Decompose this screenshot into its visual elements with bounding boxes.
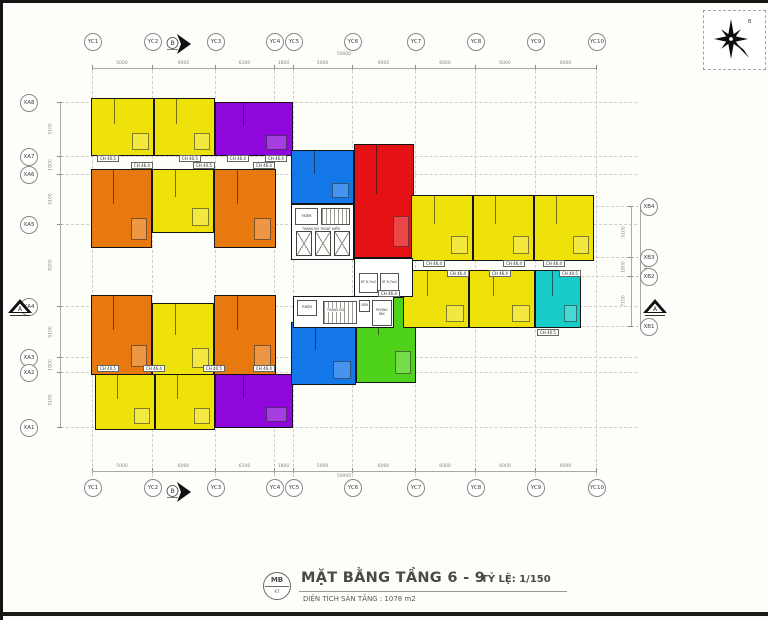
unit-tag-chip: CH 46.4 — [489, 270, 511, 277]
dim-value-bottom: 5000 — [317, 464, 328, 469]
unit-tag-chip: CH 46.4 — [543, 260, 565, 267]
dim-value-top: 6000 — [499, 61, 510, 66]
axis-bubble-XA5: XA5 — [20, 216, 38, 234]
dim-total-bottom: 50000 — [337, 474, 351, 479]
dim-value-left: 5100 — [49, 123, 54, 134]
unit-tag-chip: CH 46.4 — [378, 290, 400, 297]
axis-bubble-YC4-top: YC4 — [266, 33, 284, 51]
unit-apt-botleft-2 — [155, 374, 215, 430]
title-underline — [299, 591, 567, 592]
unit-tag-chip: CH 46.4 — [253, 365, 275, 372]
unit-apt-mid-up-yellow — [152, 169, 214, 233]
unit-tag-chip: CH 46.4 — [143, 365, 165, 372]
upper-core-room-pdem: P.ĐỆM — [295, 208, 318, 225]
axis-bubble-YC6-top: YC6 — [344, 33, 362, 51]
unit-apt-topleft-2 — [154, 98, 215, 156]
unit-apt-mid-up-orange-l — [91, 169, 152, 248]
floor-area-note: DIỆN TÍCH SÀN TẦNG : 1078 m2 — [303, 595, 416, 603]
dim-line-top — [92, 68, 596, 69]
corridor-room-kt1: KT 6.7m2 — [359, 273, 378, 293]
axis-bubble-YC3-top: YC3 — [207, 33, 225, 51]
dim-value-top: 6100 — [239, 61, 250, 66]
dim-value-top: 1800 — [278, 61, 289, 66]
axis-bubble-YC8-bottom: YC8 — [467, 479, 485, 497]
axis-bubble-YC7-top: YC7 — [407, 33, 425, 51]
axis-bubble-YC2-top: YC2 — [144, 33, 162, 51]
unit-tag-chip: CH 46.4 — [227, 155, 249, 162]
dim-value-right: 5100 — [622, 226, 627, 237]
unit-apt-right-up-1 — [411, 195, 473, 261]
dim-value-top: 5000 — [116, 61, 127, 66]
unit-apt-mid-up-orange-r — [214, 169, 276, 248]
dim-value-left: 5100 — [49, 326, 54, 337]
unit-apt-mid-low-orange-r — [214, 295, 276, 375]
upper-core: P.ĐỆM THANG BỘ THOÁT HIỂM — [291, 204, 354, 260]
axis-bubble-XA6: XA6 — [20, 166, 38, 184]
grid-line-YC6 — [352, 71, 353, 477]
compass-rose-icon: B — [704, 11, 763, 67]
dim-line-left — [60, 102, 61, 427]
compass-b-label: B — [748, 19, 752, 25]
unit-tag-chip: CH 46.4 — [265, 155, 287, 162]
north-arrow-bottom: B — [165, 480, 193, 504]
unit-apt-mid-low-orange-l — [91, 295, 152, 375]
unit-apt-right-up-2 — [473, 195, 534, 261]
dim-value-top: 6000 — [439, 61, 450, 66]
dim-value-left: 1800 — [49, 159, 54, 170]
dim-value-bottom: 6000 — [560, 464, 571, 469]
unit-apt-topleft-1 — [91, 98, 154, 156]
axis-bubble-YC2-bottom: YC2 — [144, 479, 162, 497]
axis-bubble-YC8-top: YC8 — [467, 33, 485, 51]
floorplan-sheet: YC1YC1YC2YC2YC3YC3YC4YC4YC5YC5YC6YC6YC7Y… — [0, 0, 768, 620]
dim-value-left: 1800 — [49, 359, 54, 370]
dim-value-bottom: 5000 — [116, 464, 127, 469]
unit-tag-chip: CH 46.4 — [131, 162, 153, 169]
dim-value-bottom: 1800 — [278, 464, 289, 469]
elevator-shaft-1 — [296, 231, 312, 256]
stamp-code: MB — [264, 573, 290, 587]
unit-apt-center-red — [354, 144, 414, 258]
axis-bubble-YC10-top: YC10 — [588, 33, 606, 51]
dim-value-bottom: 6000 — [178, 464, 189, 469]
axis-bubble-XA7: XA7 — [20, 148, 38, 166]
dim-value-bottom: 6000 — [439, 464, 450, 469]
dim-tick — [596, 65, 597, 70]
unit-tag-chip: CH 40.5 — [203, 365, 225, 372]
unit-tag-chip: CH 40.5 — [193, 162, 215, 169]
unit-tag-chip: CH 46.4 — [447, 270, 469, 277]
grid-line-YC5 — [293, 71, 294, 477]
axis-bubble-YC5-bottom: YC5 — [285, 479, 303, 497]
unit-apt-top-purple — [215, 102, 293, 156]
lower-core-stair-label: THANG BỘ — [327, 308, 344, 312]
dim-value-bottom: 6100 — [239, 464, 250, 469]
dim-value-top: 6000 — [378, 61, 389, 66]
elevator-shaft-2 — [315, 231, 331, 256]
axis-bubble-XB4: XB4 — [640, 198, 658, 216]
unit-tag-chip: CH 46.4 — [423, 260, 445, 267]
lower-core-room-gen: GEN — [359, 300, 370, 312]
section-marker-right: A — [641, 297, 669, 319]
unit-apt-right-up-3 — [534, 195, 594, 261]
unit-apt-right-low-2 — [469, 270, 535, 328]
axis-bubble-XB3: XB3 — [640, 249, 658, 267]
svg-text:B: B — [170, 488, 174, 495]
unit-tag-chip: CH 40.5 — [97, 155, 119, 162]
unit-apt-center-blue-up — [291, 150, 354, 204]
unit-tag-chip: CH 46.4 — [253, 162, 275, 169]
dim-value-bottom: 6000 — [378, 464, 389, 469]
dim-value-left: 5100 — [49, 394, 54, 405]
unit-tag-chip: CH 40.5 — [537, 329, 559, 336]
unit-tag-chip: CH 40.5 — [179, 155, 201, 162]
unit-apt-botleft-1 — [95, 374, 155, 430]
grid-line-YC10 — [596, 71, 597, 477]
unit-apt-right-low-cyan — [535, 270, 581, 328]
dim-value-right: 1800 — [622, 261, 627, 272]
dim-value-right: 7100 — [622, 295, 627, 306]
lower-core-stairs — [323, 301, 357, 324]
dim-line-bottom — [92, 471, 596, 472]
axis-bubble-YC10-bottom: YC10 — [588, 479, 606, 497]
dim-value-top: 6000 — [178, 61, 189, 66]
lower-core: P.ĐỆM THANG BỘ GEN PHÒNG RÁC — [293, 296, 394, 328]
elevator-shaft-3 — [334, 231, 350, 256]
axis-bubble-YC9-bottom: YC9 — [527, 479, 545, 497]
dim-value-top: 5000 — [317, 61, 328, 66]
svg-text:B: B — [170, 40, 174, 47]
upper-core-stairs — [321, 208, 350, 225]
dim-tick — [628, 326, 633, 327]
axis-bubble-XA1: XA1 — [20, 419, 38, 437]
axis-bubble-YC5-top: YC5 — [285, 33, 303, 51]
unit-tag-chip: CH 40.5 — [97, 365, 119, 372]
compass-box: B — [703, 10, 766, 70]
dim-value-top: 6000 — [560, 61, 571, 66]
drawing-scale: TỶ LỆ: 1/150 — [481, 574, 551, 585]
axis-bubble-XB1: XB1 — [640, 318, 658, 336]
unit-apt-center-blue-low — [291, 322, 356, 385]
axis-bubble-YC7-bottom: YC7 — [407, 479, 425, 497]
sheet-bottom-border — [3, 612, 768, 616]
dim-line-right — [631, 206, 632, 326]
unit-apt-bot-purple — [215, 374, 293, 428]
unit-tag-chip: CH 46.4 — [503, 260, 525, 267]
axis-bubble-XA2: XA2 — [20, 364, 38, 382]
unit-tag-chip: CH 40.5 — [559, 270, 581, 277]
lower-core-room-rac: PHÒNG RÁC — [372, 300, 392, 326]
axis-bubble-YC9-top: YC9 — [527, 33, 545, 51]
axis-bubble-XA8: XA8 — [20, 94, 38, 112]
drawing-stamp: MB KT — [263, 572, 291, 600]
dim-tick — [596, 468, 597, 473]
stamp-discipline: KT — [264, 587, 290, 598]
dim-value-left: 5100 — [49, 193, 54, 204]
axis-bubble-XB2: XB2 — [640, 268, 658, 286]
north-arrow-top: B — [165, 32, 193, 56]
lower-core-room-pdem: P.ĐỆM — [297, 300, 317, 316]
axis-bubble-YC1-bottom: YC1 — [84, 479, 102, 497]
axis-bubble-YC6-bottom: YC6 — [344, 479, 362, 497]
section-marker-left: A — [6, 297, 34, 319]
dim-value-bottom: 6000 — [499, 464, 510, 469]
dim-value-left: 8200 — [49, 259, 54, 270]
axis-bubble-YC1-top: YC1 — [84, 33, 102, 51]
dim-total-top: 50000 — [337, 52, 351, 57]
axis-bubble-YC3-bottom: YC3 — [207, 479, 225, 497]
axis-bubble-YC4-bottom: YC4 — [266, 479, 284, 497]
drawing-title: MẶT BẰNG TẦNG 6 - 9 — [301, 570, 485, 586]
dim-tick — [57, 427, 62, 428]
